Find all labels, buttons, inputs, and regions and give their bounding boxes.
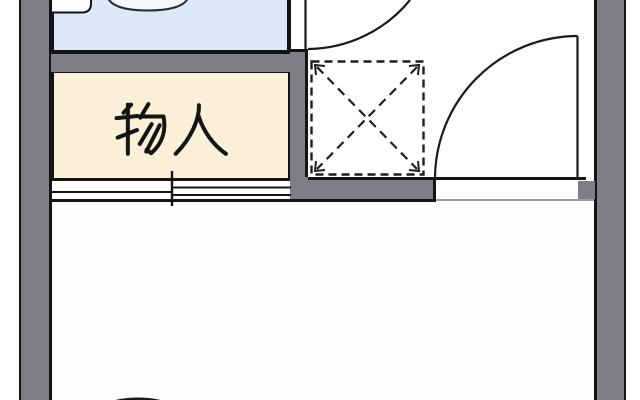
room-storage: 物入: [51, 70, 291, 181]
arrowhead-top-left: [315, 65, 325, 75]
arrowhead-bottom-left: [315, 161, 325, 171]
door-jamb-tab: [578, 181, 595, 199]
door-arc-right: [435, 36, 578, 179]
floor-plan: 物入: [0, 0, 640, 400]
hinged-door-right: [435, 36, 578, 179]
arrowhead-top-right: [409, 65, 419, 75]
dashed-box-outline: [312, 62, 424, 175]
outer-wall-left: [19, 0, 52, 400]
wall-below-bathroom: [51, 54, 308, 72]
arrowhead-bottom-right: [409, 161, 419, 171]
dashed-box-diagonal-2: [317, 67, 417, 169]
outer-wall-right: [594, 0, 626, 400]
room-bathroom: [51, 0, 291, 54]
wall-hall-left: [290, 49, 308, 179]
hinged-door-top: [306, 0, 411, 49]
wall-hall-bottom: [290, 177, 436, 202]
door-arc-top: [308, 0, 410, 49]
room-main: [51, 202, 594, 400]
dashed-x-box-symbol: [312, 62, 424, 175]
dashed-box-diagonal-1: [317, 67, 417, 169]
